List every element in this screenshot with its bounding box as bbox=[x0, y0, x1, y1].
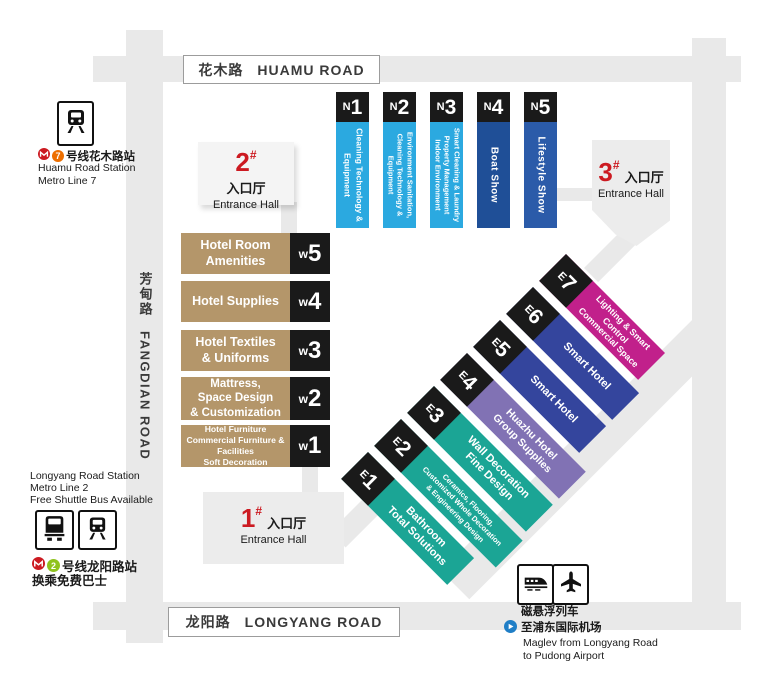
longyang-road-label: 龙阳路 LONGYANG ROAD bbox=[168, 607, 400, 637]
fangdian-road-en: FANGDIAN ROAD bbox=[138, 331, 153, 460]
hall-w5: Hotel Room Amenities w5 bbox=[181, 233, 330, 274]
maglev-zh1: 磁悬浮列车 bbox=[521, 606, 579, 620]
maglev-en1: Maglev from Longyang Road bbox=[523, 637, 658, 650]
huamu-station-en2: Metro Line 7 bbox=[38, 175, 96, 188]
hall-n4-badge: N4 bbox=[477, 92, 510, 122]
play-direction-icon bbox=[504, 620, 517, 638]
hall-w2-badge: w2 bbox=[290, 377, 330, 420]
hall-w2-label: Mattress, Space Design & Customization bbox=[181, 377, 290, 420]
entrance-hall-2: 2# 入口厅 Entrance Hall bbox=[198, 142, 294, 205]
entrance-3-number: 3# 入口厅 bbox=[598, 158, 663, 186]
entrance-hall-3: 3# 入口厅 Entrance Hall bbox=[592, 140, 670, 246]
hall-n2-label: Environment Sanitation, Cleaning Technol… bbox=[383, 122, 416, 228]
maglev-zh2: 至浦东国际机场 bbox=[521, 622, 602, 636]
plane-icon-box bbox=[552, 564, 589, 605]
huamu-road-en: HUAMU ROAD bbox=[257, 62, 364, 78]
maglev-icon-box bbox=[517, 564, 554, 605]
hall-n5-badge: N5 bbox=[524, 92, 557, 122]
hall-w5-badge: w5 bbox=[290, 233, 330, 274]
shanghai-metro-logo bbox=[32, 557, 45, 575]
walkway-n5-entrance3 bbox=[557, 188, 593, 201]
entrance-1-zh: 入口厅 bbox=[267, 513, 306, 532]
metro-line2-badge: 2 bbox=[47, 559, 60, 572]
longyang-station-en1: Longyang Road Station bbox=[30, 470, 140, 483]
hall-n3: N3 Smart Cleaning & Laundry Property Man… bbox=[430, 92, 463, 228]
hall-n2-badge: N2 bbox=[383, 92, 416, 122]
entrance-2-number: 2# bbox=[235, 148, 256, 176]
hall-n2: N2 Environment Sanitation, Cleaning Tech… bbox=[383, 92, 416, 228]
entrance-hall-1: 1# 入口厅 Entrance Hall bbox=[203, 492, 344, 564]
longyang-road-zh: 龙阳路 bbox=[186, 612, 231, 632]
hall-n3-label: Smart Cleaning & Laundry Property Manage… bbox=[430, 122, 463, 228]
fangdian-road-zh: 芳甸路 bbox=[136, 272, 155, 317]
hall-n1-label: Cleaning Technology & Equipment bbox=[336, 122, 369, 228]
entrance-2-zh: 入口厅 bbox=[226, 178, 265, 197]
entrance-1-number: 1# 入口厅 bbox=[241, 504, 306, 532]
metro-line7-badge: 7 bbox=[52, 150, 64, 162]
maglev-destination-row: 至浦东国际机场 bbox=[504, 620, 602, 638]
fangdian-road-label: 芳甸路 FANGDIAN ROAD bbox=[133, 272, 157, 462]
longyang-station-line-row: 2 号线龙阳路站 bbox=[32, 556, 137, 575]
hall-w4: Hotel Supplies w4 bbox=[181, 281, 330, 322]
hall-n1-badge: N1 bbox=[336, 92, 369, 122]
expo-map: 花木路 HUAMU ROAD 龙阳路 LONGYANG ROAD 芳甸路 FAN… bbox=[0, 0, 768, 686]
hall-w1-badge: w1 bbox=[290, 425, 330, 467]
hall-n4: N4 Boat Show bbox=[477, 92, 510, 228]
hall-n1: N1 Cleaning Technology & Equipment bbox=[336, 92, 369, 228]
hall-w5-label: Hotel Room Amenities bbox=[181, 233, 290, 274]
entrance-2-en: Entrance Hall bbox=[213, 199, 279, 211]
hall-n3-badge: N3 bbox=[430, 92, 463, 122]
entrance-3-zh: 入口厅 bbox=[625, 167, 664, 186]
hall-w4-label: Hotel Supplies bbox=[181, 281, 290, 322]
hall-w3: Hotel Textiles & Uniforms w3 bbox=[181, 330, 330, 371]
huamu-station-en1: Huamu Road Station bbox=[38, 162, 135, 175]
huamu-road-zh: 花木路 bbox=[198, 60, 243, 80]
walkway-w1-entrance1 bbox=[302, 464, 318, 494]
shuttle-bus-icon-box bbox=[35, 510, 74, 550]
train-icon bbox=[86, 515, 109, 546]
bus-icon bbox=[42, 514, 67, 546]
longyang-station-en3: Free Shuttle Bus Available bbox=[30, 494, 153, 507]
hall-n5: N5 Lifestyle Show bbox=[524, 92, 557, 228]
maglev-en2: to Pudong Airport bbox=[523, 650, 604, 663]
longyang-station-en2: Metro Line 2 bbox=[30, 482, 88, 495]
hall-w1: Hotel Furniture Commercial Furniture & F… bbox=[181, 425, 330, 467]
entrance-3-en: Entrance Hall bbox=[598, 188, 664, 200]
train-icon bbox=[64, 107, 88, 140]
hall-w3-label: Hotel Textiles & Uniforms bbox=[181, 330, 290, 371]
hall-n5-label: Lifestyle Show bbox=[524, 122, 557, 228]
huamu-road-label: 花木路 HUAMU ROAD bbox=[183, 55, 380, 84]
longyang-station-zh1: 号线龙阳路站 bbox=[62, 556, 137, 575]
entrance-1-en: Entrance Hall bbox=[240, 534, 306, 546]
metro-train-icon-box bbox=[78, 510, 117, 550]
longyang-road-en: LONGYANG ROAD bbox=[245, 614, 383, 630]
hall-w3-badge: w3 bbox=[290, 330, 330, 371]
maglev-train-icon bbox=[523, 572, 549, 597]
hall-w4-badge: w4 bbox=[290, 281, 330, 322]
hall-n4-label: Boat Show bbox=[477, 122, 510, 228]
train-station-icon-box bbox=[57, 101, 94, 146]
longyang-station-zh2: 换乘免费巴士 bbox=[32, 574, 107, 589]
plane-icon bbox=[559, 570, 583, 599]
hall-w1-label: Hotel Furniture Commercial Furniture & F… bbox=[181, 425, 290, 467]
hall-w2: Mattress, Space Design & Customization w… bbox=[181, 377, 330, 420]
